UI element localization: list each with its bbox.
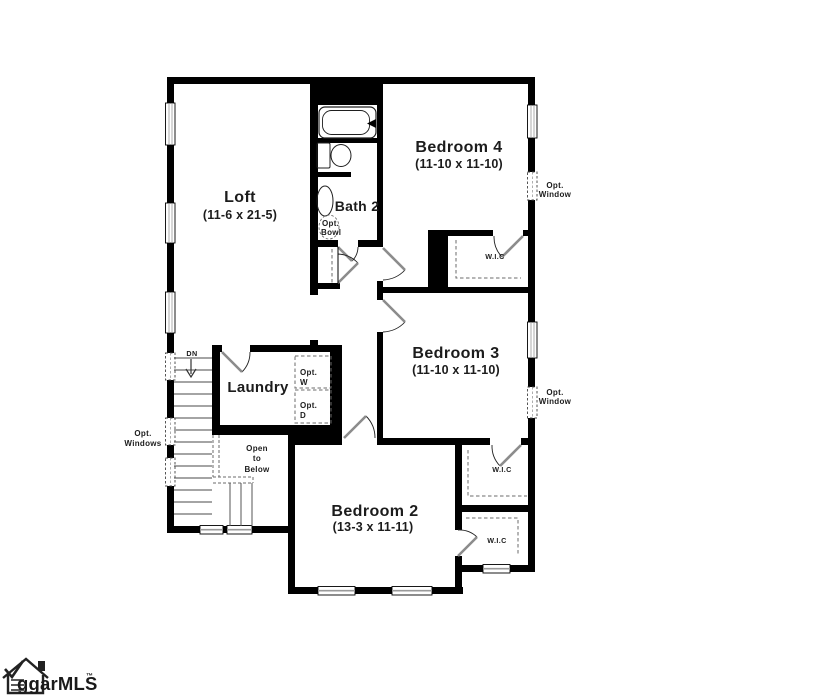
wall-bed3-bottom-right xyxy=(521,438,535,445)
wall-bed2-bottom xyxy=(288,587,463,594)
opt-dryer-label-line1: Opt. xyxy=(300,401,317,410)
opt-washer-label-line2: W xyxy=(300,378,308,387)
wall-wic4-block xyxy=(428,230,448,290)
wall-tub xyxy=(313,138,378,143)
bedroom4-label: Bedroom 4 xyxy=(415,139,502,156)
wic-bedroom2-label: W.I.C xyxy=(487,536,507,545)
window-right-1 xyxy=(528,105,538,138)
optional-window-left-1 xyxy=(166,353,176,380)
labels: Loft (11-6 x 21-5) Bath 2 Opt. Bowl Bedr… xyxy=(124,139,571,545)
bath2-label: Bath 2 xyxy=(335,198,380,214)
open-to-below-line3: Below xyxy=(244,465,270,474)
wic-bedroom3-label: W.I.C xyxy=(492,465,512,474)
bedroom2-label: Bedroom 2 xyxy=(331,503,418,520)
toilet-icon xyxy=(317,143,351,168)
open-to-below-line1: Open xyxy=(246,444,268,453)
opt-window-right-lower-line2: Window xyxy=(539,397,572,406)
wall-laundry-block xyxy=(288,425,342,445)
optional-window-right-upper xyxy=(528,172,538,200)
optional-window-right-lower xyxy=(528,387,538,418)
wall-wic4-top-left xyxy=(448,230,493,236)
window-left-2 xyxy=(166,203,176,243)
wall-laundry-left xyxy=(212,345,220,435)
window-bottom-left-1 xyxy=(200,526,223,535)
window-right-2 xyxy=(528,322,538,358)
wall-laundry-top-right xyxy=(250,345,342,352)
wic-bedroom3-door xyxy=(492,445,521,466)
wall-linen-bottom xyxy=(314,283,340,289)
opt-windows-left-line2: Windows xyxy=(124,439,161,448)
wall-bed2-right-upper xyxy=(455,438,462,530)
mls-logo: ggarMLS ™ xyxy=(3,659,98,694)
wall-loft-right xyxy=(310,83,318,295)
opt-window-right-upper-line2: Window xyxy=(539,190,572,199)
stair-treads xyxy=(174,358,212,514)
window-left-1 xyxy=(166,103,176,145)
stair-balusters xyxy=(230,483,252,526)
mls-logo-trademark: ™ xyxy=(86,673,93,680)
bedroom3-label: Bedroom 3 xyxy=(412,345,499,362)
opt-window-right-lower-line1: Opt. xyxy=(546,388,563,397)
wic-bedroom4-label: W.I.C xyxy=(485,252,505,261)
wall-bed3-left xyxy=(377,332,383,445)
wall-laundry-bottom xyxy=(212,425,295,435)
bedroom3-door xyxy=(383,300,405,332)
floor-plan-page: Loft (11-6 x 21-5) Bath 2 Opt. Bowl Bedr… xyxy=(0,0,818,695)
optional-window-left-2 xyxy=(166,418,176,445)
wall-wic4-top-right xyxy=(523,230,535,236)
wall-bed3-bottom-left xyxy=(377,438,490,445)
sink-icon xyxy=(317,186,333,216)
bedroom3-dims: (11-10 x 11-10) xyxy=(412,363,500,377)
bathtub-icon xyxy=(319,107,376,138)
opt-dryer-label-line2: D xyxy=(300,411,306,420)
optional-window-left-3 xyxy=(166,458,176,486)
down-arrow-icon xyxy=(186,359,196,377)
window-bottom-left-2 xyxy=(227,526,252,535)
opt-washer-label-line1: Opt. xyxy=(300,368,317,377)
wall-bed4-left xyxy=(377,83,383,247)
bedroom2-dims: (13-3 x 11-11) xyxy=(333,520,414,534)
laundry-label: Laundry xyxy=(227,379,289,396)
stair-rail xyxy=(213,435,253,483)
wall-bed4-bed3-divider xyxy=(377,287,535,293)
wic-bedroom2-door xyxy=(458,530,477,556)
open-to-below-line2: to xyxy=(253,454,261,463)
bedroom2-door xyxy=(344,416,375,438)
wall-chase xyxy=(313,77,383,105)
loft-label: Loft xyxy=(224,189,256,206)
opt-windows-left-line1: Opt. xyxy=(134,429,151,438)
window-bed2-bottom-2 xyxy=(392,587,432,596)
laundry-door xyxy=(222,352,250,372)
opt-bowl-label-line2: Bowl xyxy=(321,228,341,237)
wall-wic-divider xyxy=(455,505,535,512)
bedroom4-dims: (11-10 x 11-10) xyxy=(415,157,503,171)
window-wic2-bottom xyxy=(483,565,510,574)
bedroom4-door xyxy=(383,248,405,280)
floor-plan-drawing: Loft (11-6 x 21-5) Bath 2 Opt. Bowl Bedr… xyxy=(0,0,818,695)
opt-bowl-label-line1: Opt. xyxy=(322,219,339,228)
wall-bed2-left xyxy=(288,438,295,594)
dn-label: DN xyxy=(186,349,197,358)
window-bed2-bottom-1 xyxy=(318,587,355,596)
opt-window-right-upper-line1: Opt. xyxy=(546,181,563,190)
wall-bath-bottom-left xyxy=(310,240,338,247)
wall-toilet xyxy=(313,172,351,177)
window-left-3 xyxy=(166,292,176,333)
loft-dims: (11-6 x 21-5) xyxy=(203,208,277,222)
